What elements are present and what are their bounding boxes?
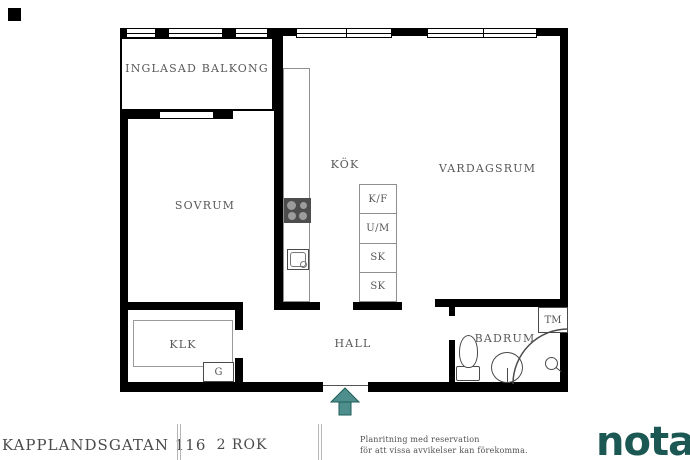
entrance-arrow-icon bbox=[328, 387, 362, 417]
window-icon bbox=[235, 28, 268, 38]
wardrobe-box: G bbox=[203, 362, 234, 382]
notar-logo: notar bbox=[596, 419, 690, 460]
toilet-icon bbox=[456, 366, 480, 381]
wall-klk-right-upper bbox=[235, 302, 243, 330]
kitchen-sink-icon bbox=[287, 249, 309, 270]
wardrobe-label: G bbox=[215, 367, 223, 378]
entrance-threshold bbox=[323, 385, 368, 386]
room-label-badrum: BADRUM bbox=[455, 332, 555, 345]
burner-icon bbox=[300, 202, 307, 209]
window-icon bbox=[296, 28, 392, 38]
window-divider bbox=[346, 29, 347, 37]
wall-window-stub bbox=[223, 28, 235, 38]
wall-sovrum-top-b bbox=[213, 111, 233, 119]
kitchen-cabinet-column: K/F U/M SK SK bbox=[359, 184, 397, 302]
window-divider bbox=[483, 29, 484, 37]
room-label-sovrum: SOVRUM bbox=[120, 199, 290, 212]
wall-sovrum-top-a bbox=[120, 111, 160, 119]
wall-bottom-left bbox=[120, 382, 323, 392]
wall-hall-top-a bbox=[274, 302, 320, 310]
room-label-vardagsrum: VARDAGSRUM bbox=[420, 162, 555, 175]
disclaimer-line-2: för att vissa avvikelser kan förekomma. bbox=[360, 446, 528, 457]
room-label-hall: HALL bbox=[318, 337, 388, 350]
wall-kok-left bbox=[274, 36, 283, 310]
cabinet-sk2: SK bbox=[360, 273, 396, 301]
footer-rooms-count: 2 ROK bbox=[172, 437, 312, 453]
corner-mark bbox=[8, 8, 21, 21]
window-icon bbox=[126, 28, 156, 38]
wall-badrum-left-lower bbox=[449, 340, 455, 384]
wall-sovrum-bottom bbox=[120, 302, 243, 310]
room-label-kok: KÖK bbox=[320, 158, 370, 171]
window-icon bbox=[427, 28, 537, 38]
wall-hall-top-b bbox=[353, 302, 402, 310]
cabinet-um: U/M bbox=[360, 214, 396, 243]
wall-klk-right-lower bbox=[235, 358, 243, 384]
window-icon bbox=[168, 28, 223, 38]
wall-left bbox=[120, 111, 128, 392]
cabinet-kf: K/F bbox=[360, 185, 396, 214]
floor-plan-canvas: K/F U/M SK SK G TM INGLASAD BALKONG SOVR… bbox=[0, 0, 690, 460]
disclaimer-line-1: Planritning med reservation bbox=[360, 435, 528, 446]
room-label-inglasad-balkong: INGLASAD BALKONG bbox=[120, 62, 274, 75]
burner-icon bbox=[288, 212, 296, 220]
room-label-klk: KLK bbox=[133, 338, 233, 351]
burner-icon bbox=[299, 212, 307, 220]
window-icon bbox=[160, 111, 213, 119]
wall-badrum-top bbox=[435, 299, 568, 307]
footer-divider bbox=[318, 424, 322, 460]
wall-badrum-left-stub bbox=[449, 307, 455, 316]
wall-window-stub bbox=[156, 28, 168, 38]
footer-disclaimer: Planritning med reservation för att viss… bbox=[360, 435, 528, 456]
cabinet-sk1: SK bbox=[360, 244, 396, 273]
